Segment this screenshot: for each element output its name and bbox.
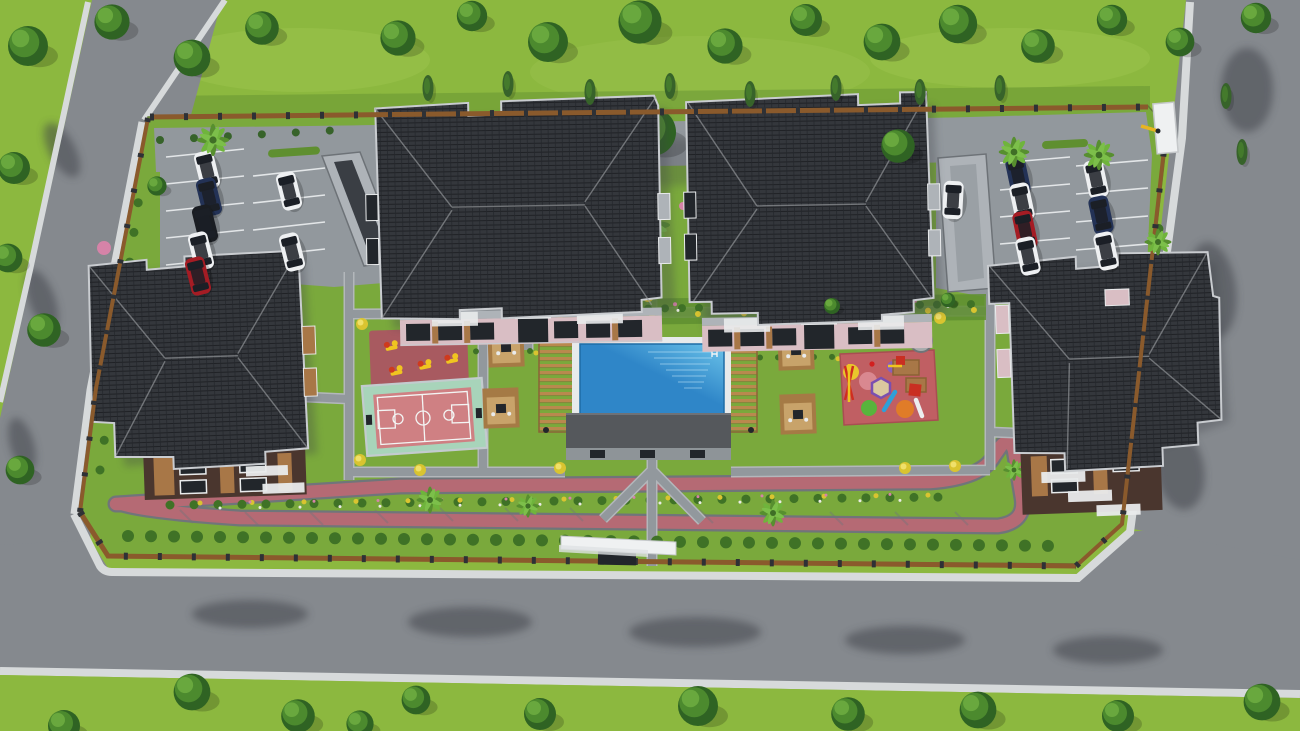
palm-tree bbox=[760, 500, 787, 527]
roof-terrace bbox=[1105, 289, 1130, 306]
cabana bbox=[484, 389, 517, 426]
entrance bbox=[804, 324, 834, 350]
side-balcony bbox=[997, 349, 1011, 377]
basketball-court bbox=[362, 378, 488, 456]
side-balcony bbox=[684, 192, 696, 218]
side-balcony bbox=[928, 184, 940, 210]
side-balcony bbox=[658, 193, 670, 219]
side-balcony bbox=[366, 238, 378, 264]
side-balcony bbox=[995, 305, 1009, 333]
side-balcony bbox=[659, 237, 671, 263]
pool-water bbox=[580, 344, 724, 414]
terrace-step bbox=[262, 482, 304, 493]
children-playground bbox=[840, 350, 938, 425]
side-balcony bbox=[302, 326, 316, 354]
roof bbox=[686, 92, 934, 326]
flowering-bush bbox=[97, 241, 111, 255]
sandpit-hexagon bbox=[872, 378, 890, 398]
site-plan-svg bbox=[0, 0, 1300, 731]
block-north-west bbox=[364, 95, 676, 346]
side-balcony bbox=[928, 230, 940, 256]
side-balcony bbox=[366, 194, 378, 220]
terrace-step bbox=[1096, 504, 1140, 517]
terrace-step bbox=[246, 465, 288, 476]
palm-tree bbox=[516, 494, 539, 517]
terrace-step bbox=[1068, 490, 1112, 503]
palm-tree bbox=[197, 124, 229, 156]
palm-tree bbox=[1145, 229, 1172, 256]
palm-tree bbox=[1084, 140, 1115, 171]
entrance bbox=[518, 318, 548, 344]
pool-house bbox=[566, 414, 731, 460]
hoop-east bbox=[476, 408, 482, 418]
cabana bbox=[781, 395, 814, 432]
palm-tree bbox=[999, 137, 1030, 168]
side-balcony bbox=[684, 234, 696, 260]
figure bbox=[869, 361, 874, 366]
roof bbox=[375, 96, 662, 321]
side-balcony bbox=[303, 368, 317, 396]
terrace-step bbox=[1041, 471, 1085, 484]
aerial-render bbox=[0, 0, 1300, 731]
hoop-west bbox=[366, 415, 372, 425]
palm-tree bbox=[417, 487, 444, 514]
